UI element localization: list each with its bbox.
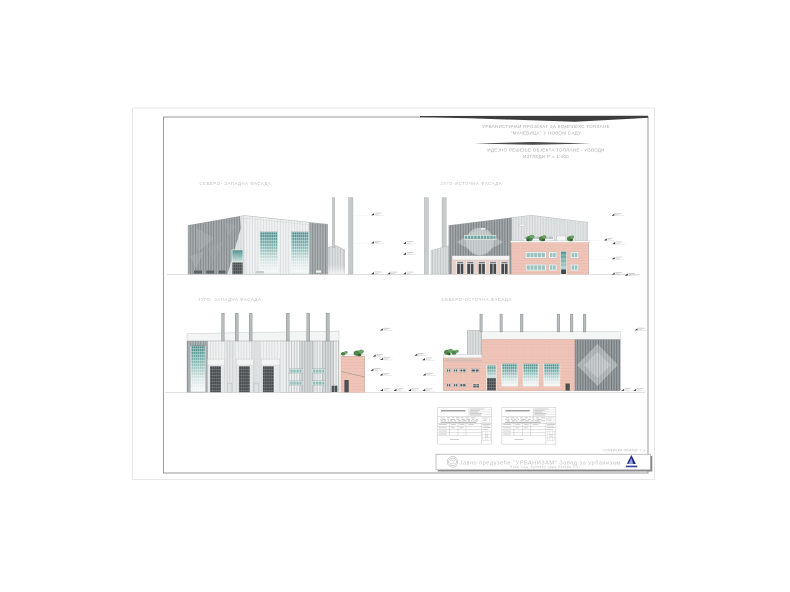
svg-text:УРБАНИСТИЧКИ ПРОЈЕКАТ ЗА КОМПЛ: УРБАНИСТИЧКИ ПРОЈЕКАТ ЗА КОМПЛЕКС ТОПЛАН…	[482, 124, 610, 129]
svg-text:Нови Сад, Булевар цара Лаз: Нови Сад, Булевар цара Лазара 3/III	[510, 465, 580, 469]
svg-text:ГРАФИЧКИ ПРИЛОГ 7.3: ГРАФИЧКИ ПРИЛОГ 7.3	[603, 449, 645, 453]
svg-text:"МАЧЕВИЦА" У НОВОМ САДУ: "МАЧЕВИЦА" У НОВОМ САДУ	[511, 130, 581, 135]
svg-text:ЈУГО- ЗАПАДНА ФАСАДА: ЈУГО- ЗАПАДНА ФАСАДА	[198, 297, 261, 302]
svg-text:СЕВЕРО-ИСТОЧНА ФАСАДА: СЕВЕРО-ИСТОЧНА ФАСАДА	[442, 297, 512, 302]
svg-text:ЈУГО-ИСТОЧНА ФАСАДА: ЈУГО-ИСТОЧНА ФАСАДА	[441, 181, 503, 186]
svg-text:ИЗГЛЕДИ Р = 1:400: ИЗГЛЕДИ Р = 1:400	[523, 154, 569, 159]
svg-text:ИДЕЈНО РЕШЕЊЕ ОБЈЕКТА ТОПЛАНЕ: ИДЕЈНО РЕШЕЊЕ ОБЈЕКТА ТОПЛАНЕ - ИЗВОДИ	[487, 148, 604, 153]
svg-text:СЕВЕРО- ЗАПАДНА ФАСАДА: СЕВЕРО- ЗАПАДНА ФАСАДА	[200, 181, 272, 186]
